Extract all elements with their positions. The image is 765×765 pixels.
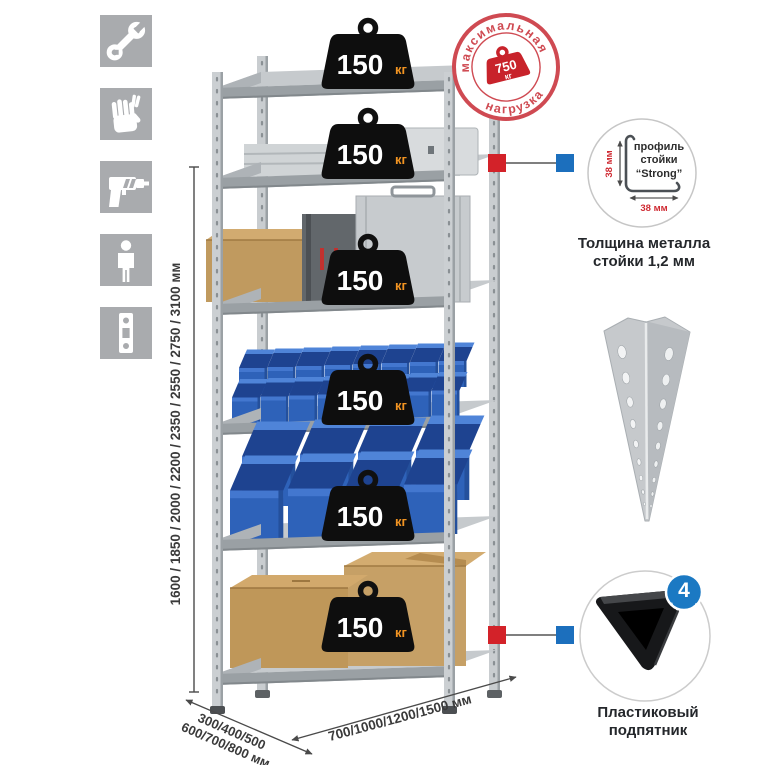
- width-dimension-label: 700/1000/1200/1500 мм: [327, 691, 473, 744]
- profile-label-line2: стойки: [640, 154, 677, 166]
- shelving-infographic: 1600 / 1850 / 2000 / 2200 / 2350 / 2550 …: [0, 0, 765, 765]
- red-marker-top: [488, 154, 506, 172]
- svg-text:150: 150: [337, 265, 384, 296]
- red-marker-bottom: [488, 626, 506, 644]
- width-dimension: 700/1000/1200/1500 мм: [292, 677, 516, 744]
- profile-label-line3: “Strong”: [636, 168, 682, 180]
- included-count: 4: [678, 579, 690, 602]
- included-count-badge: 4 в комплекте: [666, 574, 702, 613]
- height-dimension: [189, 167, 199, 692]
- svg-text:150: 150: [337, 501, 384, 532]
- height-dimension-label: 1600 / 1850 / 2000 / 2200 / 2350 / 2550 …: [168, 263, 183, 606]
- max-load-stamp: максимальная нагрузка 750 кг: [443, 4, 569, 130]
- shelf-load-unit: кг: [395, 62, 408, 77]
- svg-text:150: 150: [337, 385, 384, 416]
- foot-caption-line2: подпятник: [609, 722, 688, 739]
- blue-marker-top: [556, 154, 574, 172]
- profile-callout: 38 мм 38 мм профиль стойки “Strong”: [588, 119, 696, 227]
- shelf-load-value: 150: [337, 49, 384, 80]
- gloves-icon: [100, 88, 152, 140]
- shelf-load-badge: 150 кг: [322, 111, 415, 180]
- blue-marker-bottom: [556, 626, 574, 644]
- foot-callout: 4 в комплекте: [580, 571, 710, 701]
- profile-caption-line1: Толщина металла: [578, 235, 711, 252]
- perforated-post-icon: [100, 307, 152, 359]
- wrench-icon: [100, 15, 152, 67]
- profile-caption-line2: стойки 1,2 мм: [593, 253, 695, 270]
- depth-dimension: 300/400/500 600/700/800 мм: [179, 700, 312, 765]
- svg-text:150: 150: [337, 139, 384, 170]
- svg-text:кг: кг: [395, 278, 408, 293]
- svg-text:кг: кг: [395, 625, 408, 640]
- upright-profile-image: [604, 317, 690, 521]
- foot-caption-line1: Пластиковый: [597, 704, 698, 721]
- svg-text:150: 150: [337, 612, 384, 643]
- svg-text:кг: кг: [395, 152, 408, 167]
- drill-icon: [100, 161, 152, 213]
- person-icon: [100, 234, 152, 286]
- profile-label-line1: профиль: [634, 141, 684, 153]
- callout-connectors: [488, 154, 574, 644]
- profile-dim-vertical: 38 мм: [604, 150, 615, 177]
- shelf-load-badge: 150 кг: [322, 21, 415, 90]
- svg-text:кг: кг: [395, 514, 408, 529]
- profile-dim-horizontal: 38 мм: [640, 203, 667, 214]
- svg-text:кг: кг: [395, 398, 408, 413]
- assembly-icons: [100, 15, 152, 359]
